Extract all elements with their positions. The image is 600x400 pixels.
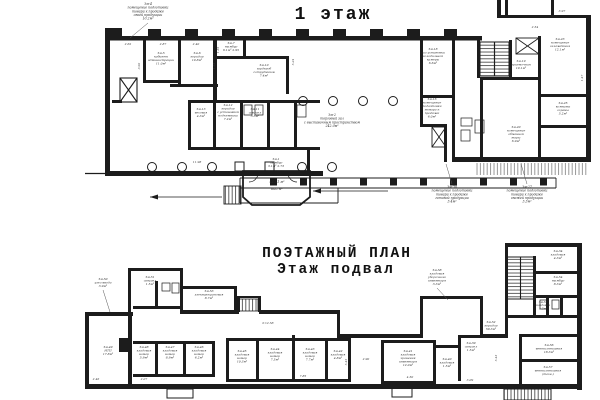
plan-label: 2.46	[92, 377, 100, 381]
plan-label: Зм-51санузел1.5м²	[144, 275, 157, 286]
plan-label: Зм-34кладовая4.3м²	[551, 249, 566, 260]
plan-label: 11.98	[193, 160, 202, 164]
floorplan-sheet: 1 этаж ПОЭТАЖНЫЙ ПЛАН Этаж подвал Зм-4по…	[0, 0, 600, 400]
plan-label: 5.43	[494, 355, 498, 362]
plan-label: Зм-23помещениеохлаждения12.1м²	[550, 37, 570, 51]
basement-entry-steps-icon	[239, 299, 258, 311]
plan-label: Зм-43кладоваяномер7.7м²	[303, 347, 318, 361]
plan-label: Зм-46кладоваяномер6.2м²	[192, 345, 207, 359]
plan-label: 4.50	[406, 375, 414, 379]
plan-label: 2.62	[124, 42, 132, 46]
elevator-shaft-icon	[120, 78, 137, 102]
plan-label: 2.54	[531, 25, 539, 29]
plan-label: 3.97	[559, 9, 566, 13]
plan-label: 7.85	[300, 374, 307, 378]
plan-label: Зм-20помещениеобменнойтары6.9м²	[507, 125, 526, 143]
basement-title: Этаж подвал	[277, 262, 395, 278]
plan-label: Зм-30помещение подготовкитовара к продаж…	[432, 185, 473, 204]
plan-label: Зм-7тамбур6.1м² 2.95	[223, 41, 239, 52]
plan-label: Зм-56вентиляторная18.3м²	[536, 343, 563, 354]
entry-stairs-icon	[224, 186, 241, 204]
plan-label: Зм-2торговый залс выставочным пространст…	[304, 113, 361, 128]
plan-label: Зм-27помещение подготовкитовара к продаж…	[507, 185, 548, 204]
plan-label: Зм-6коридор10.8м²	[190, 51, 203, 62]
plan-label: 688 м²	[271, 187, 283, 191]
plan-label: Зм-12коридорс установкойподъемника7.2м²	[217, 103, 239, 121]
plan-label: Зм-4помещение подготовкитовара к продаже…	[128, 2, 169, 21]
plumbing-fixtures-icon	[244, 105, 484, 141]
plan-label: Зм-11санузел3.3м²	[249, 107, 262, 118]
plan-label: 3.92	[137, 63, 141, 70]
plan-label: Зм-13весовая4.3м²	[195, 107, 208, 118]
plan-label: Зм-5кабинетадминистрации11.0м²	[148, 51, 174, 65]
plan-label: Зм-52коридор59.3м²	[484, 320, 497, 331]
plan-label: Зм-1тамбур3.1м² 2.73	[268, 157, 284, 168]
plan-heading-title: ПОЭТАЖНЫЙ ПЛАН	[262, 244, 412, 262]
floor1-plan	[85, 0, 591, 205]
plan-label: Зм-48кладоваяномер5.9м²	[137, 345, 152, 359]
plan-label: Зм-58кладоваяуборочногоинвентаря3.3м²	[427, 268, 446, 286]
plan-label: Зм-16помещениеподготовкитовара кпродаже6…	[422, 97, 441, 118]
floor1-title: 1 этаж	[295, 5, 372, 25]
plan-label: 3.09	[467, 378, 474, 382]
plan-label: Зм-42кладовая4.8м²	[331, 349, 346, 360]
plan-label: 2.87	[159, 42, 167, 46]
basement-exit-stairs-icon	[504, 389, 551, 400]
floorplan-drawing: 1 этаж ПОЭТАЖНЫЙ ПЛАН Этаж подвал Зм-4по…	[0, 0, 600, 400]
plan-label: Зм-49ИТП17.8м²	[103, 345, 114, 356]
plan-label: Зм-54тамбур8.3м²	[552, 275, 565, 286]
basement-stairs-icon	[507, 257, 534, 299]
plan-label: h=2.58	[262, 321, 273, 325]
plan-label: Зм-57вентиляторная(техн.)	[535, 365, 562, 376]
plan-label: Зм-18зал установкихолодильнойкамеры6.6м²	[421, 47, 445, 65]
plan-label: Зм-44кладоваяномер7.5м²	[268, 347, 283, 361]
plan-label: Зм-25комнатаохраны5.2м²	[556, 101, 571, 115]
plan-label: 5.45	[344, 359, 348, 366]
plan-label: 5.24	[291, 59, 295, 66]
floor1-stairs-icon	[480, 42, 509, 76]
plan-label: Зм-45кладоваяномер10.3м²	[235, 349, 250, 363]
plan-label: Зм-47кладоваяномер8.9м²	[163, 345, 178, 359]
plan-label: Зм-53электрощитовая8.7м²	[195, 289, 224, 300]
plan-label: Зм-10гардеробсотрудников7.4м²	[253, 63, 274, 77]
plan-label: Зм-50узел ввода3.9м²	[93, 277, 111, 288]
plan-label: 1.33	[212, 63, 216, 70]
plan-label: 2.40	[192, 42, 200, 46]
plan-label: 1.47	[580, 75, 584, 82]
plan-label: 2.90	[362, 357, 370, 361]
plan-label: Зм-41кладоваяхраненияинвентаря12.0м²	[399, 349, 417, 367]
plan-label: Зм-19приемочная10.1м²	[511, 59, 530, 70]
plan-label: 443.1 м²	[269, 180, 286, 184]
plan-label: Зм-40кладовая1.5м²	[440, 357, 455, 368]
plan-label: 1.35	[216, 47, 220, 54]
plan-label: 2.07	[140, 377, 148, 381]
plan-label: Зм-39санузел1.5м²	[465, 341, 478, 352]
floor1-walls	[105, 0, 591, 176]
